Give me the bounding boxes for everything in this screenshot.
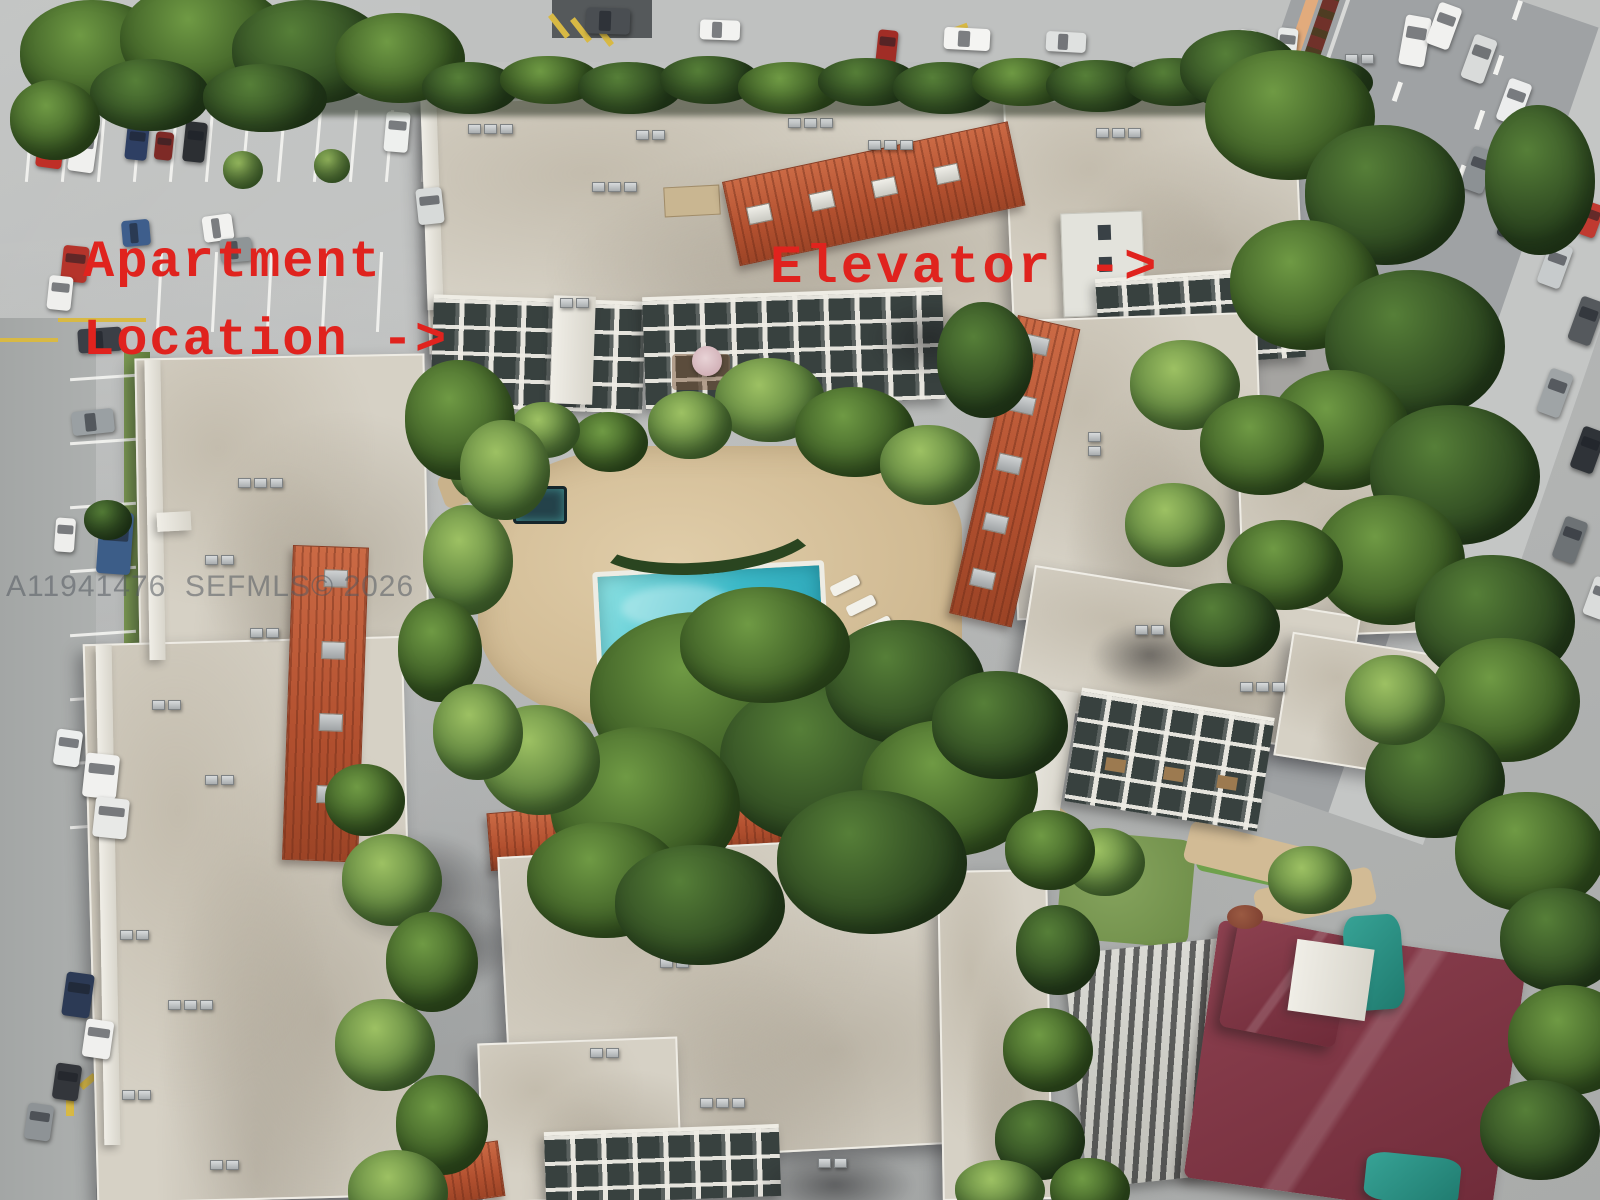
dormer-window: [969, 568, 996, 591]
flower-bed: [1227, 905, 1263, 929]
dormer-window: [871, 176, 898, 199]
car: [943, 27, 990, 51]
tree: [1508, 985, 1600, 1095]
house-white-canopy: [1287, 939, 1374, 1021]
tree: [1268, 846, 1352, 914]
car-windshield: [57, 1071, 78, 1082]
tree: [1170, 583, 1280, 667]
tree: [10, 80, 100, 160]
car-windshield: [957, 30, 970, 47]
ac-unit: [184, 1000, 197, 1010]
car-windshield: [1578, 306, 1599, 323]
ac-unit: [1096, 128, 1109, 138]
ac-unit: [900, 140, 913, 150]
tree: [937, 302, 1033, 418]
ac-unit: [484, 124, 497, 134]
ac-unit: [168, 1000, 181, 1010]
mls-watermark: A11941476 SEFMLS© 2026: [6, 570, 414, 604]
patio-umbrella: [692, 346, 722, 376]
ac-unit: [560, 298, 573, 308]
ac-unit: [138, 1090, 151, 1100]
ac-unit: [1151, 625, 1164, 635]
car-windshield: [84, 413, 97, 432]
ac-unit: [716, 1098, 729, 1108]
ac-unit: [732, 1098, 745, 1108]
car-windshield: [51, 283, 70, 293]
car: [1551, 515, 1589, 565]
ac-unit: [820, 118, 833, 128]
car: [46, 275, 73, 311]
car-windshield: [712, 22, 723, 38]
car-windshield: [1547, 378, 1568, 395]
car-windshield: [880, 37, 896, 47]
car: [81, 1018, 114, 1060]
car: [700, 19, 741, 40]
ac-unit: [122, 1090, 135, 1100]
tree: [1125, 483, 1225, 567]
building-west-roof: [134, 353, 429, 658]
ac-unit: [1112, 128, 1125, 138]
aerial-photo: Apartment Location -> Elevator -> A11941…: [0, 0, 1600, 1200]
tree: [90, 59, 210, 131]
ac-unit: [136, 930, 149, 940]
ac-unit: [238, 478, 251, 488]
tree: [1016, 905, 1100, 995]
car-windshield: [1406, 25, 1428, 40]
car-windshield: [1506, 87, 1527, 103]
ac-unit: [788, 118, 801, 128]
tree: [1200, 395, 1324, 495]
car: [383, 111, 410, 153]
ac-unit: [608, 182, 621, 192]
ac-unit: [1256, 682, 1269, 692]
car-windshield: [599, 11, 611, 31]
dormer-window: [982, 512, 1009, 535]
ac-unit: [1240, 682, 1253, 692]
car: [71, 408, 115, 436]
elevator-label: Elevator ->: [770, 230, 1159, 308]
car: [92, 796, 130, 839]
tree: [1345, 655, 1445, 745]
tree: [460, 420, 550, 520]
car: [24, 1102, 55, 1141]
ac-unit: [221, 775, 234, 785]
stair-landing: [1162, 766, 1184, 782]
car-windshield: [1058, 34, 1069, 50]
dormer-window: [809, 190, 836, 213]
ac-unit: [468, 124, 481, 134]
tree: [880, 425, 980, 505]
dormer-window: [319, 713, 344, 732]
dormer-window: [996, 452, 1023, 475]
ac-unit: [636, 130, 649, 140]
ac-unit: [1128, 128, 1141, 138]
ac-unit: [120, 930, 133, 940]
car: [415, 187, 445, 226]
car: [586, 7, 631, 35]
dormer-window: [746, 203, 773, 226]
car: [82, 752, 120, 799]
tree: [325, 764, 405, 836]
pavement-marking: [0, 338, 58, 342]
tree: [572, 412, 648, 472]
car: [53, 728, 84, 767]
parking-stall-line: [205, 110, 214, 182]
tree: [777, 790, 967, 934]
ac-unit: [1361, 54, 1374, 64]
tree: [1480, 1080, 1600, 1180]
ac-unit: [834, 1158, 847, 1168]
stair-tower: [550, 295, 596, 404]
stair-landing: [1105, 757, 1127, 773]
ac-unit: [700, 1098, 713, 1108]
tree: [615, 845, 785, 965]
car-windshield: [98, 806, 125, 818]
ac-unit: [1088, 446, 1101, 456]
car-windshield: [58, 737, 79, 748]
ac-unit: [868, 140, 881, 150]
tree: [1003, 1008, 1093, 1092]
ac-unit: [205, 775, 218, 785]
ac-unit: [205, 555, 218, 565]
rooftop-structure: [157, 511, 192, 532]
ac-unit: [250, 628, 263, 638]
ac-unit: [270, 478, 283, 488]
ac-unit: [884, 140, 897, 150]
car-windshield: [88, 1027, 110, 1039]
ac-unit: [606, 1048, 619, 1058]
ac-unit: [266, 628, 279, 638]
ac-unit: [592, 182, 605, 192]
tree: [223, 151, 263, 189]
parking-stall-line: [349, 110, 358, 182]
tree: [1485, 105, 1595, 255]
car-windshield: [88, 762, 115, 775]
tree: [680, 587, 850, 703]
car: [154, 131, 175, 161]
tree: [84, 500, 132, 540]
ac-unit: [590, 1048, 603, 1058]
car: [54, 517, 76, 552]
tree: [335, 999, 435, 1091]
car-windshield: [1562, 525, 1583, 541]
car-windshield: [1592, 585, 1600, 600]
ac-unit: [624, 182, 637, 192]
car-windshield: [29, 1111, 50, 1122]
ac-unit: [152, 700, 165, 710]
tree: [648, 391, 732, 459]
ac-unit: [221, 555, 234, 565]
ac-unit: [168, 700, 181, 710]
car-windshield: [58, 525, 74, 534]
ac-unit: [652, 130, 665, 140]
ac-unit: [818, 1158, 831, 1168]
car: [1582, 575, 1600, 620]
car: [1569, 425, 1600, 475]
car: [1046, 31, 1087, 53]
car: [182, 121, 208, 163]
ac-unit: [200, 1000, 213, 1010]
ac-unit: [1135, 625, 1148, 635]
stair-landing: [1216, 775, 1238, 791]
apartment-location-label-line1: Apartment: [83, 224, 382, 302]
ac-unit: [226, 1160, 239, 1170]
car-windshield: [68, 981, 91, 994]
south-building-facade: [544, 1124, 781, 1200]
car-windshield: [187, 130, 205, 141]
car-windshield: [388, 120, 407, 131]
ac-unit: [576, 298, 589, 308]
tree: [433, 684, 523, 780]
tree: [386, 912, 478, 1012]
car-windshield: [1471, 44, 1492, 61]
car-windshield: [157, 137, 171, 145]
dormer-window: [321, 641, 346, 660]
apartment-location-label-line2: Location ->: [83, 302, 448, 380]
car-windshield: [1436, 11, 1457, 27]
tree: [932, 671, 1068, 779]
ac-unit: [254, 478, 267, 488]
ac-unit: [1088, 432, 1101, 442]
dormer-window: [934, 163, 961, 186]
tree: [203, 64, 327, 132]
tree: [314, 149, 350, 183]
roof-access-hatch: [663, 185, 720, 218]
ac-unit: [1272, 682, 1285, 692]
car-windshield: [1580, 435, 1600, 451]
car-windshield: [129, 131, 147, 141]
ac-unit: [210, 1160, 223, 1170]
ac-unit: [804, 118, 817, 128]
tree: [1005, 810, 1095, 890]
car-windshield: [419, 195, 440, 206]
car: [52, 1062, 83, 1101]
ac-unit: [500, 124, 513, 134]
